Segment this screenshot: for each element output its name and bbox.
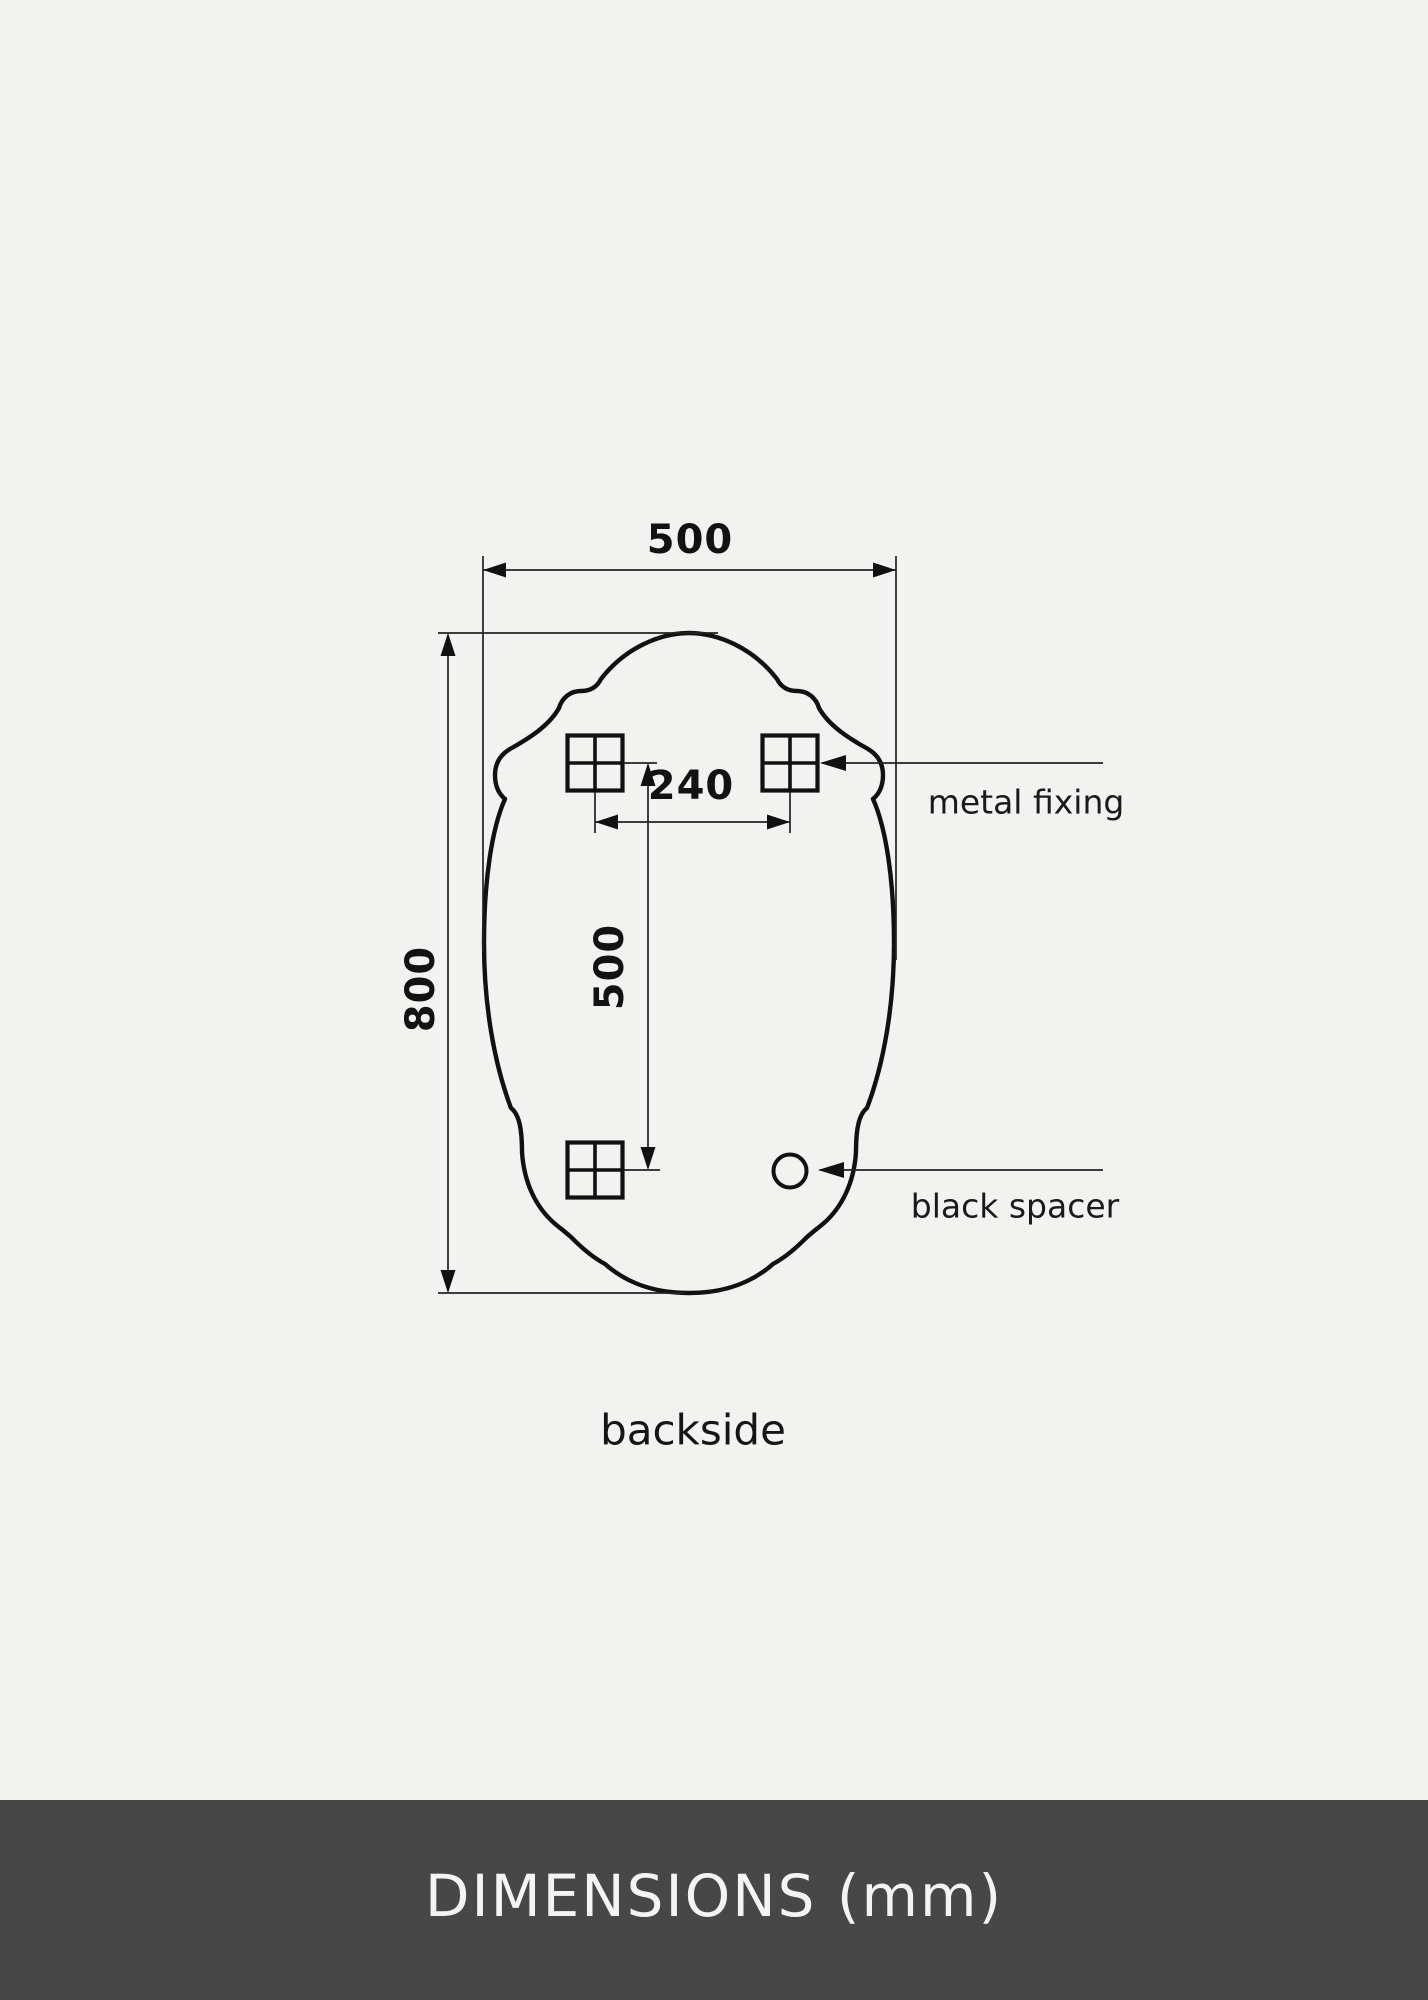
- arrowhead-240-right: [767, 815, 790, 830]
- footer-title: DIMENSIONS (mm): [425, 1862, 1003, 1930]
- fixing-square-bottom: [568, 1143, 623, 1198]
- arrowhead-height-top: [441, 633, 456, 656]
- dim-label-fixing-horizontal: 240: [648, 763, 735, 809]
- arrowhead-240-left: [595, 815, 618, 830]
- drawing-caption: backside: [600, 1406, 786, 1455]
- arrowhead-500v-bottom: [641, 1147, 656, 1170]
- mirror-dimension-drawing: [0, 0, 1428, 2000]
- dim-label-fixing-vertical: 500: [587, 924, 633, 1011]
- mirror-outline: [484, 633, 894, 1293]
- black-spacer-label: black spacer: [911, 1187, 1119, 1226]
- dim-label-overall-width: 500: [647, 517, 734, 563]
- fixing-square-top-right: [763, 736, 818, 791]
- metal-fixing-label: metal fixing: [928, 783, 1125, 822]
- arrowhead-width-right: [873, 563, 896, 578]
- footer-bar: DIMENSIONS (mm): [0, 1800, 1428, 2000]
- arrowhead-black-spacer: [818, 1162, 844, 1178]
- dimension-lines: [438, 556, 1103, 1293]
- arrowhead-width-left: [483, 563, 506, 578]
- arrowhead-metal-fixing: [820, 755, 846, 771]
- fixing-square-top-left: [568, 736, 623, 791]
- arrowheads: [441, 563, 897, 1294]
- arrowhead-height-bottom: [441, 1270, 456, 1293]
- dim-label-overall-height: 800: [398, 946, 444, 1033]
- spacer-circle: [774, 1155, 807, 1188]
